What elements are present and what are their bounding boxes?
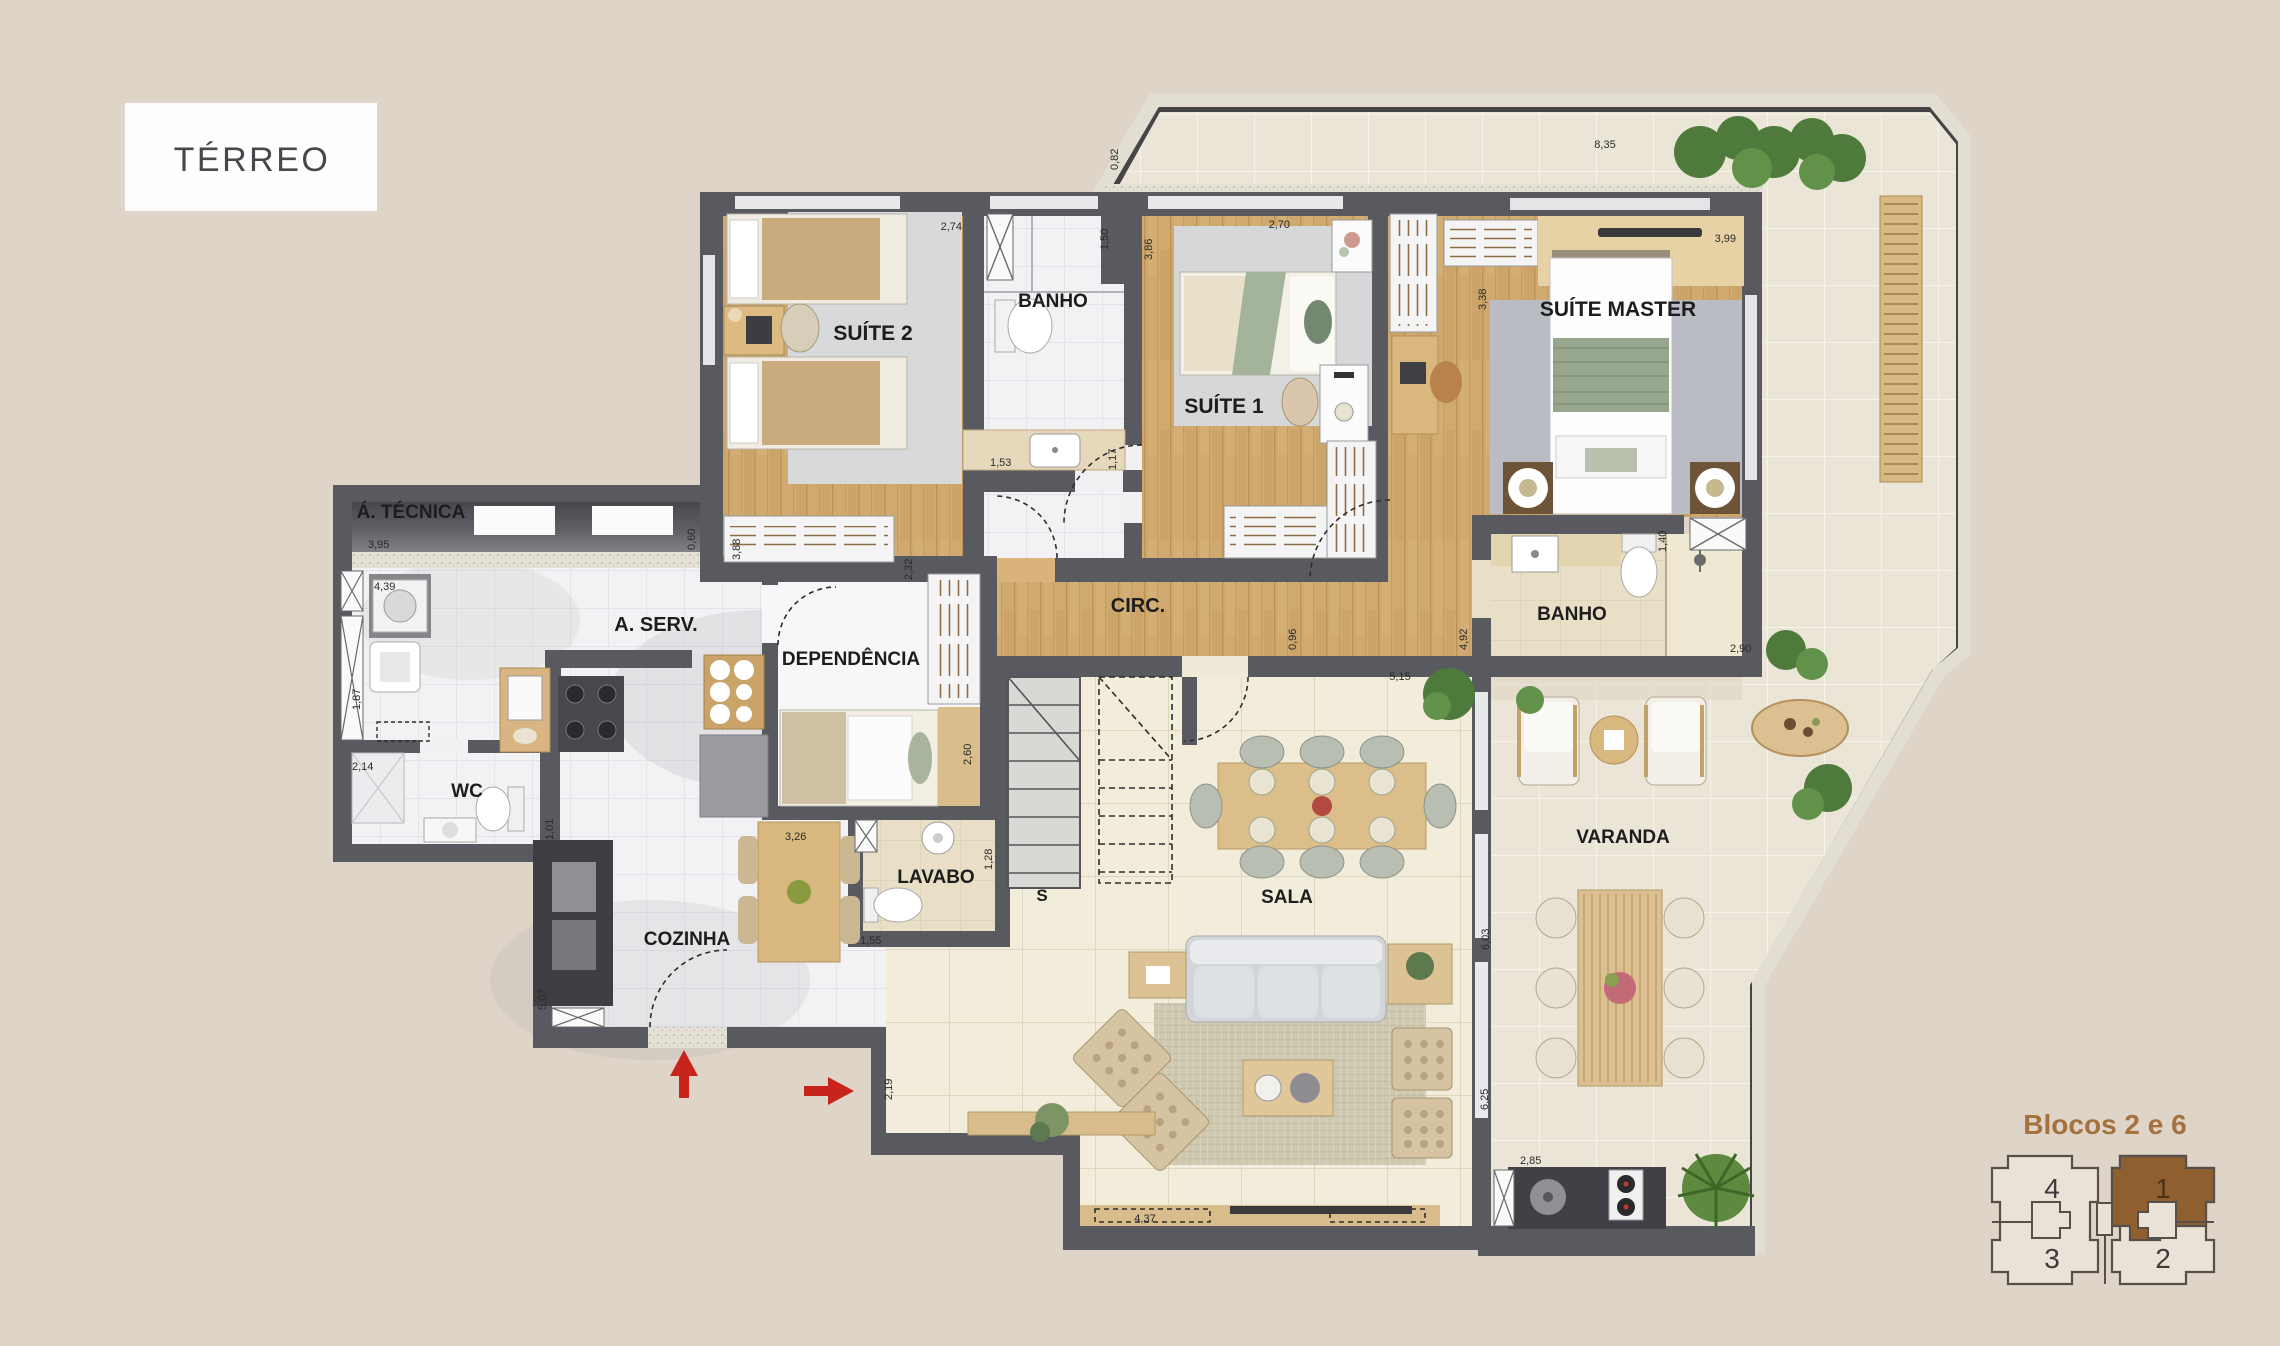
- svg-text:2,14: 2,14: [352, 761, 373, 773]
- svg-text:BANHO: BANHO: [1018, 291, 1088, 312]
- svg-text:0,60: 0,60: [686, 529, 698, 550]
- svg-text:4,39: 4,39: [374, 581, 395, 593]
- svg-text:4,92: 4,92: [1458, 629, 1470, 650]
- svg-text:2: 2: [2155, 1243, 2171, 1274]
- svg-text:6,03: 6,03: [1480, 929, 1492, 950]
- svg-text:TÉRREO: TÉRREO: [174, 141, 331, 179]
- svg-text:1,40: 1,40: [1657, 531, 1669, 552]
- svg-text:2,85: 2,85: [1520, 1155, 1541, 1167]
- svg-text:1,01: 1,01: [544, 819, 556, 840]
- svg-text:8,35: 8,35: [1594, 139, 1615, 151]
- svg-text:3,88: 3,88: [731, 539, 743, 560]
- svg-text:1,17: 1,17: [1107, 449, 1119, 470]
- svg-text:2,70: 2,70: [1269, 219, 1290, 231]
- svg-text:1,53: 1,53: [990, 457, 1011, 469]
- svg-text:6,25: 6,25: [1479, 1089, 1491, 1110]
- svg-text:A. SERV.: A. SERV.: [614, 614, 697, 636]
- svg-text:DEPENDÊNCIA: DEPENDÊNCIA: [782, 648, 921, 670]
- svg-text:3: 3: [2044, 1243, 2060, 1274]
- svg-text:1,50: 1,50: [1099, 229, 1111, 250]
- svg-text:1: 1: [2155, 1173, 2171, 1204]
- svg-text:3,86: 3,86: [1143, 239, 1155, 260]
- svg-text:1,28: 1,28: [983, 849, 995, 870]
- svg-text:3,99: 3,99: [1715, 233, 1736, 245]
- svg-text:2,19: 2,19: [883, 1079, 895, 1100]
- svg-text:COZINHA: COZINHA: [644, 929, 731, 950]
- svg-text:SUÍTE 2: SUÍTE 2: [833, 322, 912, 345]
- svg-text:0,96: 0,96: [1287, 629, 1299, 650]
- svg-text:Á. TÉCNICA: Á. TÉCNICA: [357, 501, 466, 523]
- svg-text:2,32: 2,32: [903, 559, 915, 580]
- svg-text:Blocos 2 e 6: Blocos 2 e 6: [2023, 1109, 2186, 1140]
- svg-text:3,38: 3,38: [1477, 289, 1489, 310]
- svg-text:2,60: 2,60: [962, 744, 974, 765]
- svg-text:5,07: 5,07: [537, 989, 549, 1010]
- svg-text:4,37: 4,37: [1134, 1213, 1155, 1225]
- svg-text:BANHO: BANHO: [1537, 604, 1607, 625]
- svg-text:LAVABO: LAVABO: [897, 867, 974, 888]
- svg-text:S: S: [1036, 886, 1047, 905]
- svg-text:2,90: 2,90: [1730, 643, 1751, 655]
- svg-text:3,26: 3,26: [785, 831, 806, 843]
- svg-text:0,82: 0,82: [1109, 149, 1121, 170]
- svg-text:SALA: SALA: [1261, 887, 1313, 908]
- svg-text:1,55: 1,55: [860, 935, 881, 947]
- svg-text:2,74: 2,74: [941, 221, 962, 233]
- svg-text:5,15: 5,15: [1389, 671, 1410, 683]
- svg-text:4: 4: [2044, 1173, 2060, 1204]
- svg-text:VARANDA: VARANDA: [1576, 827, 1670, 848]
- svg-text:SUÍTE 1: SUÍTE 1: [1184, 395, 1264, 418]
- svg-text:WC: WC: [451, 781, 483, 802]
- svg-text:SUÍTE MASTER: SUÍTE MASTER: [1540, 298, 1696, 321]
- svg-text:1,87: 1,87: [351, 689, 363, 710]
- svg-text:3,95: 3,95: [368, 539, 389, 551]
- svg-text:CIRC.: CIRC.: [1111, 595, 1165, 617]
